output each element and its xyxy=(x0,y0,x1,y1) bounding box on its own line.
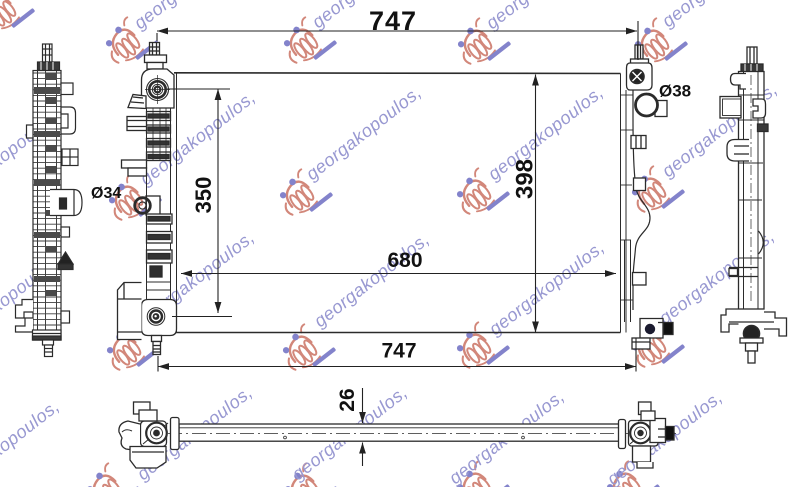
svg-text:26: 26 xyxy=(336,388,359,411)
svg-text:680: 680 xyxy=(387,249,422,272)
svg-text:747: 747 xyxy=(381,340,416,363)
svg-text:398: 398 xyxy=(512,159,539,199)
svg-text:747: 747 xyxy=(369,6,417,36)
svg-text:350: 350 xyxy=(191,177,216,214)
svg-text:Ø34: Ø34 xyxy=(91,185,121,202)
svg-text:Ø38: Ø38 xyxy=(659,82,691,101)
